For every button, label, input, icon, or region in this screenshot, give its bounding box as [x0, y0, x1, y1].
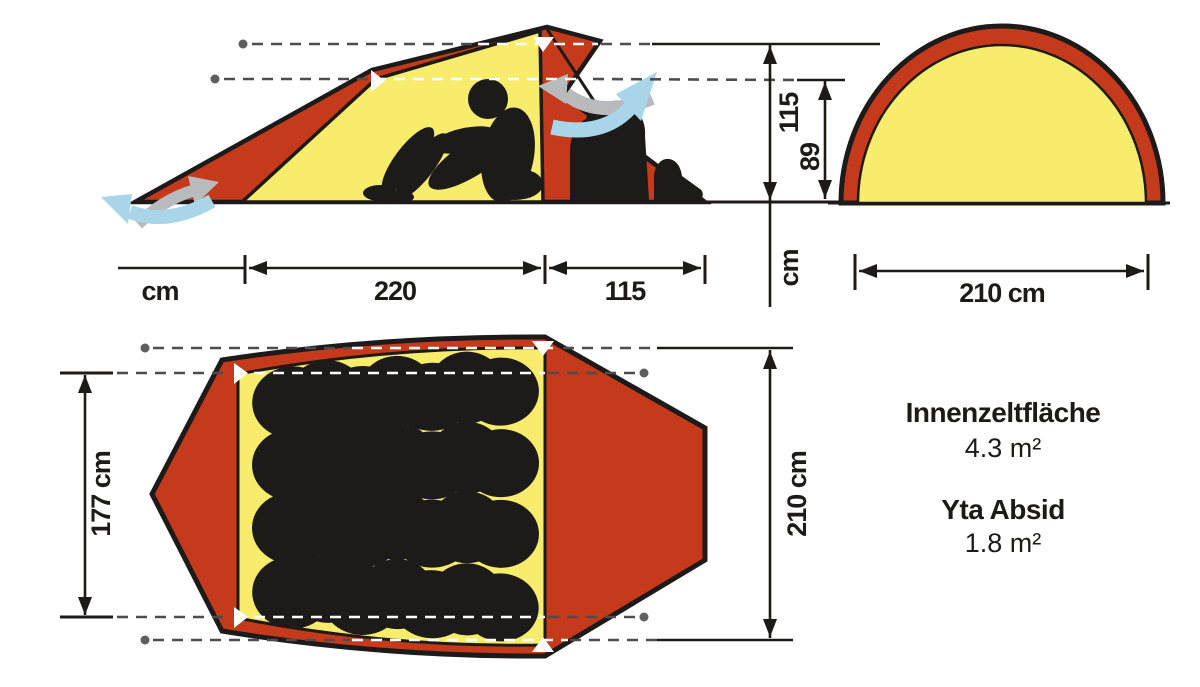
front-width-dimension: 210 cm — [855, 254, 1148, 308]
inner-area-title: Innenzeltfläche — [906, 397, 1101, 428]
front-width-label: 210 cm — [959, 278, 1045, 308]
peak-height-label: 115 — [774, 92, 804, 134]
front-view: 210 cm — [828, 26, 1170, 308]
top-view: 177 cm 210 cm — [60, 337, 812, 656]
length-unit-label: cm — [141, 276, 178, 306]
inner-area-value: 4.3 m² — [965, 433, 1042, 463]
vestibule-length-label: 115 — [605, 276, 647, 306]
length-dimensions: cm 220 115 — [118, 255, 705, 306]
inner-width-dimension: 177 cm — [60, 373, 116, 617]
height-dimensions: 115 89 cm — [763, 44, 832, 307]
vestibule-area-value: 1.8 m² — [965, 528, 1042, 558]
side-view: 115 89 cm cm 220 115 — [101, 27, 880, 307]
base-vent-airflow — [101, 176, 219, 224]
height-unit-label: cm — [774, 249, 804, 286]
inner-width-label: 177 cm — [86, 451, 116, 537]
outer-width-label: 210 cm — [782, 451, 812, 537]
tent-dimension-diagram: 115 89 cm cm 220 115 — [0, 0, 1200, 687]
area-specs: Innenzeltfläche 4.3 m² Yta Absid 1.8 m² — [906, 397, 1101, 558]
sleeping-pads — [250, 347, 541, 645]
boot-silhouette — [654, 159, 703, 200]
inner-height-label: 89 — [795, 142, 825, 171]
inner-length-label: 220 — [374, 276, 416, 306]
vestibule-area-title: Yta Absid — [941, 494, 1065, 525]
